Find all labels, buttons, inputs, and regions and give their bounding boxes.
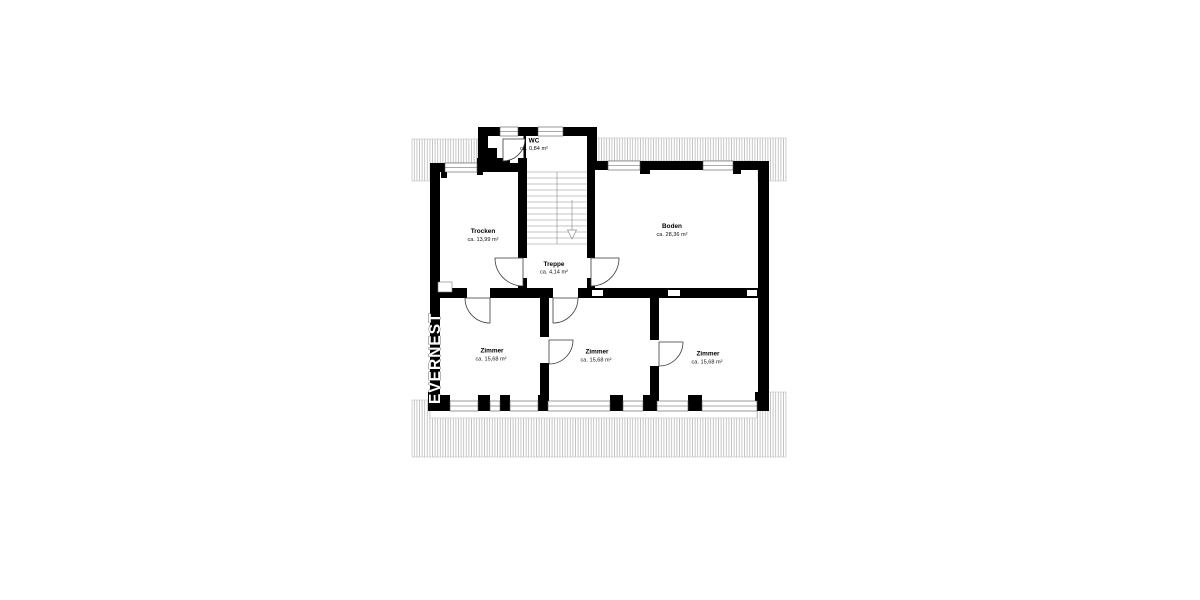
room-name: Zimmer — [480, 348, 504, 355]
window — [623, 401, 643, 411]
wall-segment — [518, 158, 527, 258]
wall-niche — [592, 290, 603, 296]
wall-pier — [688, 395, 702, 411]
watermark-text: EVERNEST — [427, 312, 444, 404]
window — [445, 163, 477, 172]
room-name: Treppe — [544, 261, 565, 268]
room-area: ca. 15,68 m² — [691, 360, 722, 366]
watermark-trademark: ™ — [435, 309, 440, 314]
floor-plan: WC ca. 0,84 m² Trocken ca. 13,99 m² Bode… — [0, 0, 1200, 600]
window — [490, 401, 500, 411]
window — [538, 127, 563, 136]
room-name: Trocken — [471, 228, 496, 235]
canvas-background — [0, 0, 1200, 600]
wall-segment — [587, 136, 595, 258]
wall-pier — [640, 161, 650, 174]
wall-pier — [643, 395, 657, 411]
window — [450, 401, 478, 411]
wall-segment — [758, 161, 769, 400]
room-area: ca. 4,14 m² — [540, 270, 568, 276]
wall-pier — [477, 163, 483, 175]
wall-pier — [478, 395, 490, 411]
window — [510, 401, 538, 411]
wall-niche — [438, 282, 452, 292]
wall-niche — [747, 290, 757, 296]
window — [702, 401, 757, 411]
room-area: ca. 13,99 m² — [467, 237, 498, 243]
room-name: Zimmer — [585, 349, 609, 356]
room-area: ca. 15,68 m² — [475, 357, 506, 363]
brand-watermark: EVERNEST ™ — [427, 309, 444, 405]
wall-niche — [668, 290, 680, 296]
room-name: WC — [529, 138, 540, 145]
room-name: Boden — [662, 223, 682, 230]
wall-segment — [490, 288, 553, 298]
room-area: ca. 0,84 m² — [520, 146, 548, 152]
room-area: ca. 15,68 m² — [580, 358, 611, 364]
wall-segment — [650, 298, 659, 340]
wall-pier — [538, 395, 548, 411]
wall-pier — [610, 395, 623, 411]
window — [657, 401, 688, 411]
room-area: ca. 28,36 m² — [656, 232, 687, 238]
window — [548, 401, 610, 411]
wall-segment — [540, 298, 549, 337]
room-name: Zimmer — [696, 351, 720, 358]
window — [500, 127, 518, 136]
wall-segment — [478, 127, 597, 136]
wall-pier — [500, 395, 510, 411]
window — [703, 161, 733, 170]
wall-pier — [733, 161, 741, 174]
window — [608, 161, 640, 170]
